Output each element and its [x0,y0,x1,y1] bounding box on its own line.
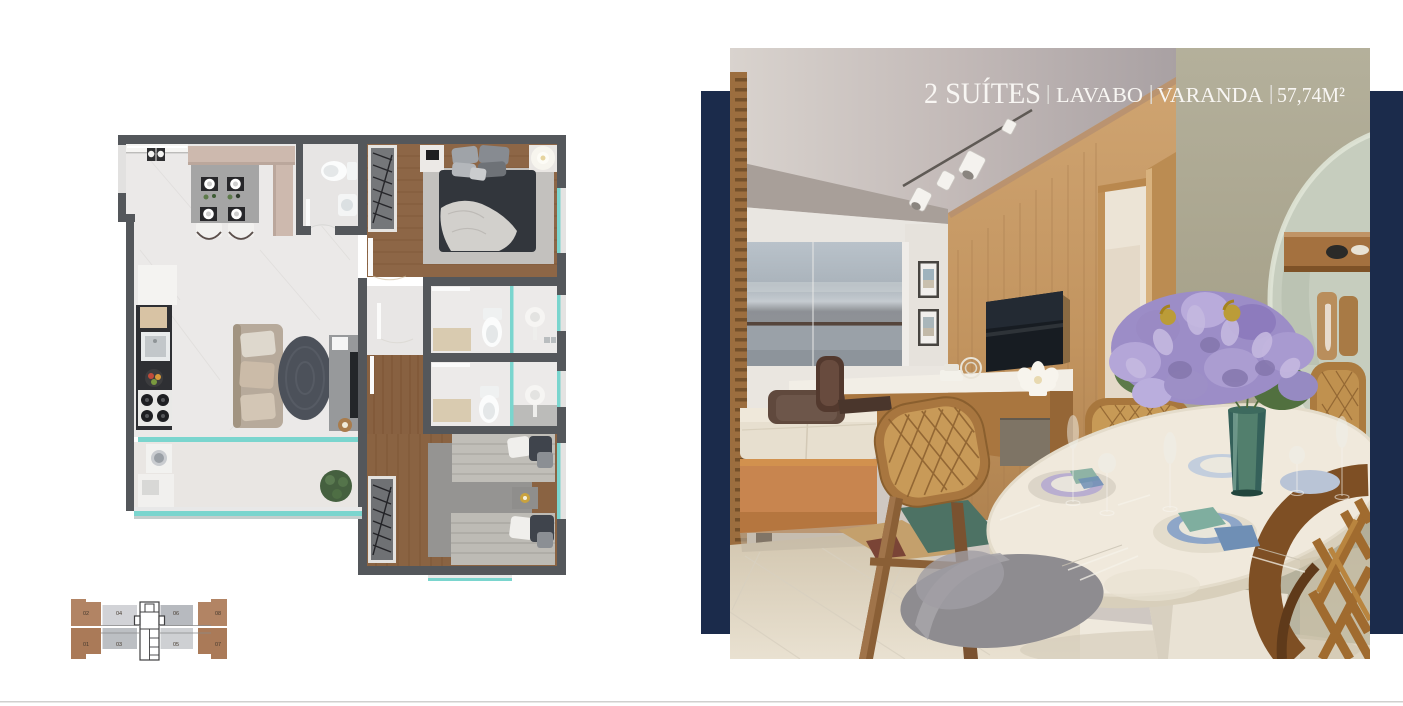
svg-text:04: 04 [116,611,122,617]
svg-text:05: 05 [173,642,179,648]
svg-text:57,74M²: 57,74M² [1277,83,1345,107]
svg-text:03: 03 [116,642,122,648]
svg-text:08: 08 [215,611,221,617]
svg-text:LAVABO: LAVABO [1056,83,1143,107]
svg-text:07: 07 [215,642,221,648]
svg-text:VARANDA: VARANDA [1157,83,1263,107]
svg-text:06: 06 [173,611,179,617]
svg-text:2 SUÍTES: 2 SUÍTES [924,77,1041,110]
svg-text:01: 01 [83,642,89,648]
svg-text:02: 02 [83,611,89,617]
